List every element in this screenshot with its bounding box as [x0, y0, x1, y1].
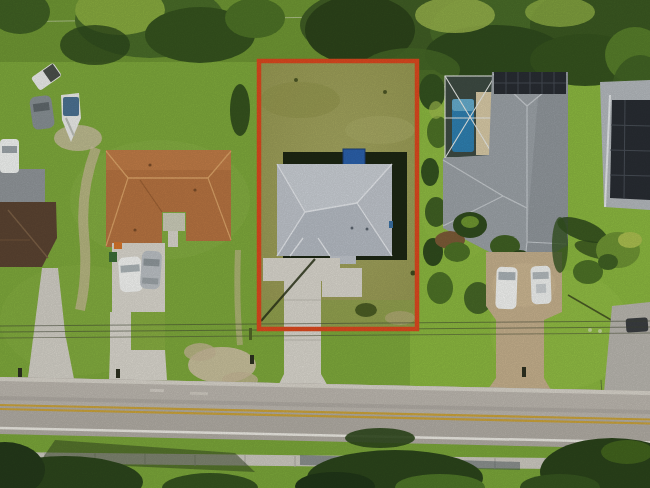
photo-grain: [0, 0, 650, 488]
aerial-photo: [0, 0, 650, 488]
